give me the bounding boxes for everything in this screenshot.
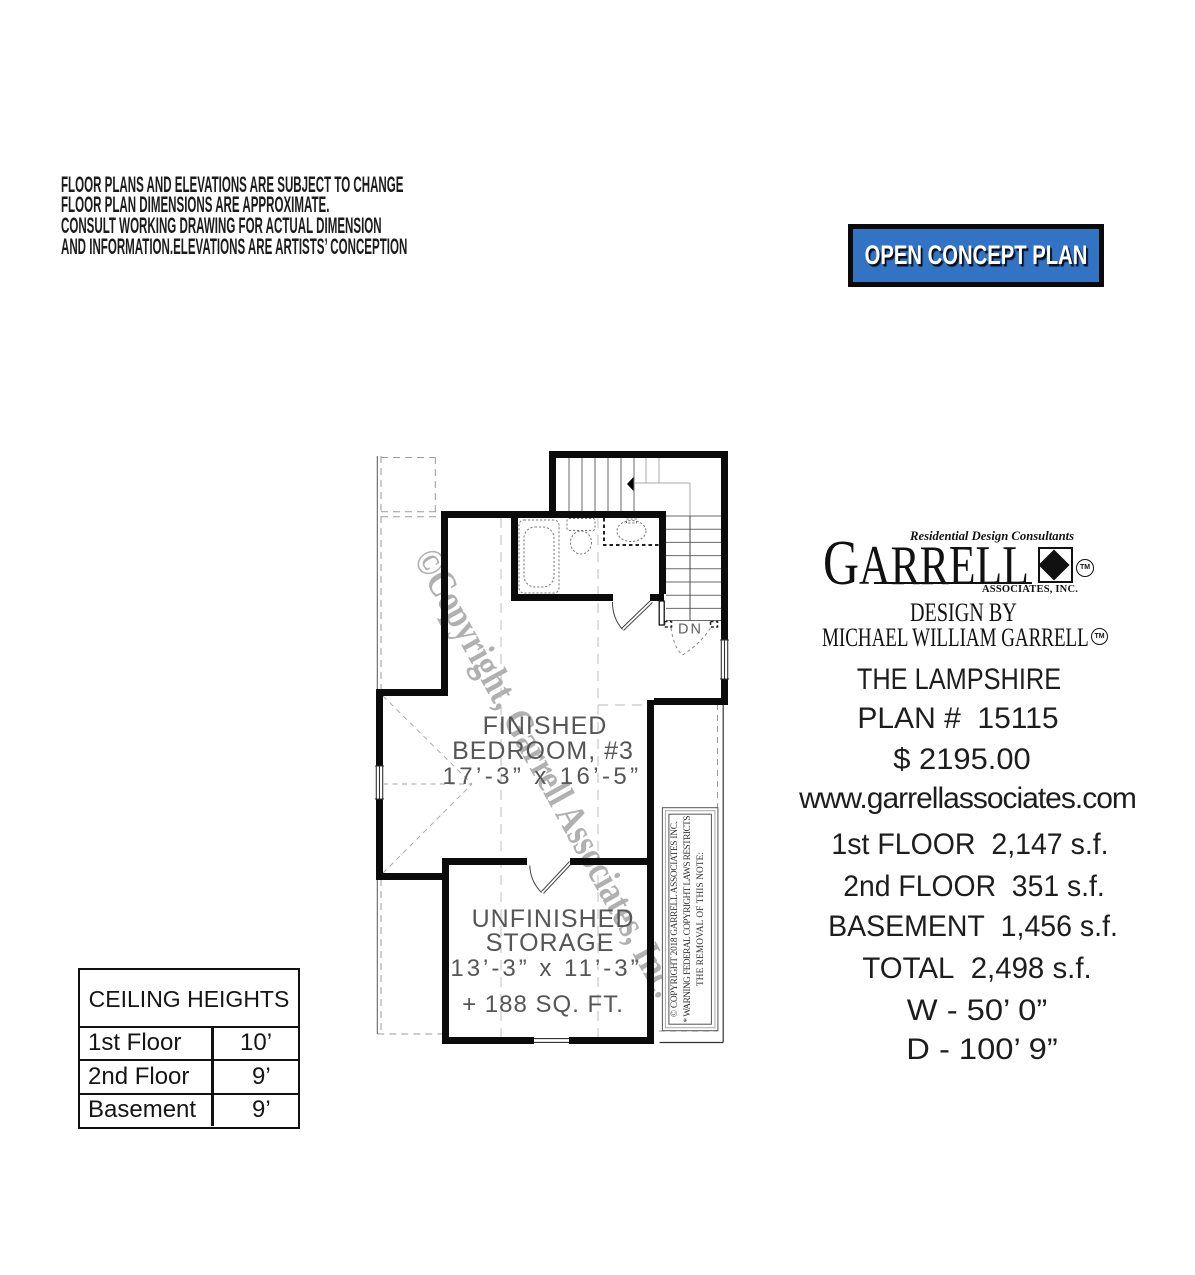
svg-text:13’-3” x 11’-3”: 13’-3” x 11’-3”: [450, 955, 641, 982]
svg-text:17’-3” x 16’-5”: 17’-3” x 16’-5”: [442, 763, 641, 790]
svg-text:* WARNING FEDERAL COPYRIGHT LA: * WARNING FEDERAL COPYRIGHT LAWS RESTRIC…: [683, 816, 693, 1023]
svg-text:© COPYRIGHT 2018 GARRELL ASSOC: © COPYRIGHT 2018 GARRELL ASSOCIATES INC.: [669, 821, 680, 1017]
svg-text:THE REMOVAL OF THIS NOTE:: THE REMOVAL OF THIS NOTE:: [696, 852, 706, 986]
svg-text:+ 188 SQ. FT.: + 188 SQ. FT.: [462, 991, 624, 1018]
svg-text:DN: DN: [678, 622, 703, 638]
svg-text:FINISHED: FINISHED: [483, 712, 608, 740]
svg-text:STORAGE: STORAGE: [486, 929, 615, 957]
svg-text:BEDROOM, #3: BEDROOM, #3: [452, 737, 634, 765]
